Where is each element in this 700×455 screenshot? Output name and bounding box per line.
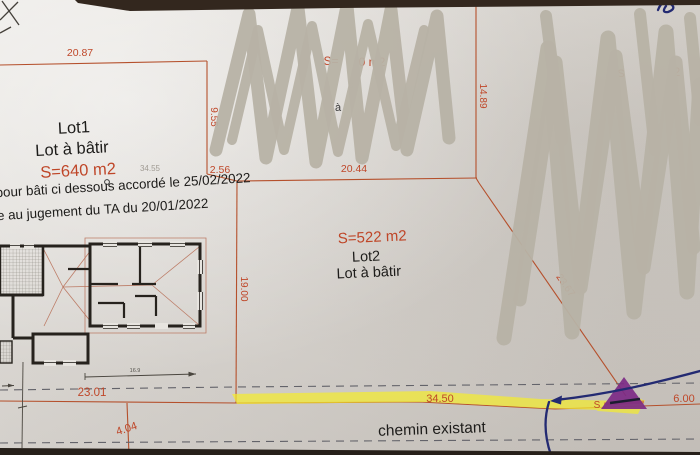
lot2-name: Lot2 [352,249,381,266]
dim-top: 20.87 [67,47,93,59]
road-dashed-line-lower [0,439,700,443]
roof-ridge-lines [44,247,199,326]
note-line2: e au jugement du TA du 20/01/2022 [0,196,209,224]
dim-bottom-left: 23.01 [78,387,107,399]
survey-cross-icon [0,1,19,33]
hatched-small-area [0,341,12,363]
lot1-inner-dim: 34.55 [140,164,161,173]
boundary-left-lot2 [236,181,237,403]
house-dimension-lines [2,362,196,448]
dim-road-front: 34.50 [426,393,454,405]
boundary-diagonal [479,183,626,396]
lot1-label-block: Lot1 Lot à bâtir S=640 m2 [34,117,117,182]
house-floorplan: 16.9 [0,238,206,448]
lot1-designation: Lot à bâtir [35,138,110,160]
pen-curve [545,402,551,455]
scribble-right-4 [640,14,655,150]
dim-top-lot2: 20.44 [341,163,367,175]
dim-left-lot2: 19.00 [238,276,249,301]
dim-road-width: 4.04 [115,420,139,438]
road-label: chemin existant [378,419,487,440]
dim-upper-right: 14.89 [477,83,488,108]
masked-black-fragment-2: à [335,102,342,114]
hatched-terrace-area [0,246,43,295]
boundary-top-lot2 [237,178,477,181]
boundary-top-lot1 [0,61,207,65]
dim-jog: 2.56 [210,164,231,176]
photo-edge-bottom [0,448,700,455]
dim-right-offset: 6.00 [673,393,694,405]
plan-photo: 16.9 Lot1 Lot à bâtir S=640 m2 34.55 pou… [0,0,700,455]
plan-drawing: 16.9 Lot1 Lot à bâtir S=640 m2 34.55 pou… [0,0,700,455]
marker-red-fragment: S [594,400,601,411]
lot2-label-block: S=522 m2 Lot2 Lot à bâtir [335,227,409,282]
scribble-right-2 [520,56,694,300]
permit-notes: pour bâti ci dessous accordé le 25/02/20… [0,170,252,223]
lot2-designation: Lot à bâtir [336,264,401,283]
scribble-redactions [216,6,700,338]
lower-wing-walls [33,334,88,363]
house-width-dim: 16.9 [130,368,141,374]
lot2-area: S=522 m2 [337,227,406,247]
lot1-name: Lot1 [57,118,90,138]
